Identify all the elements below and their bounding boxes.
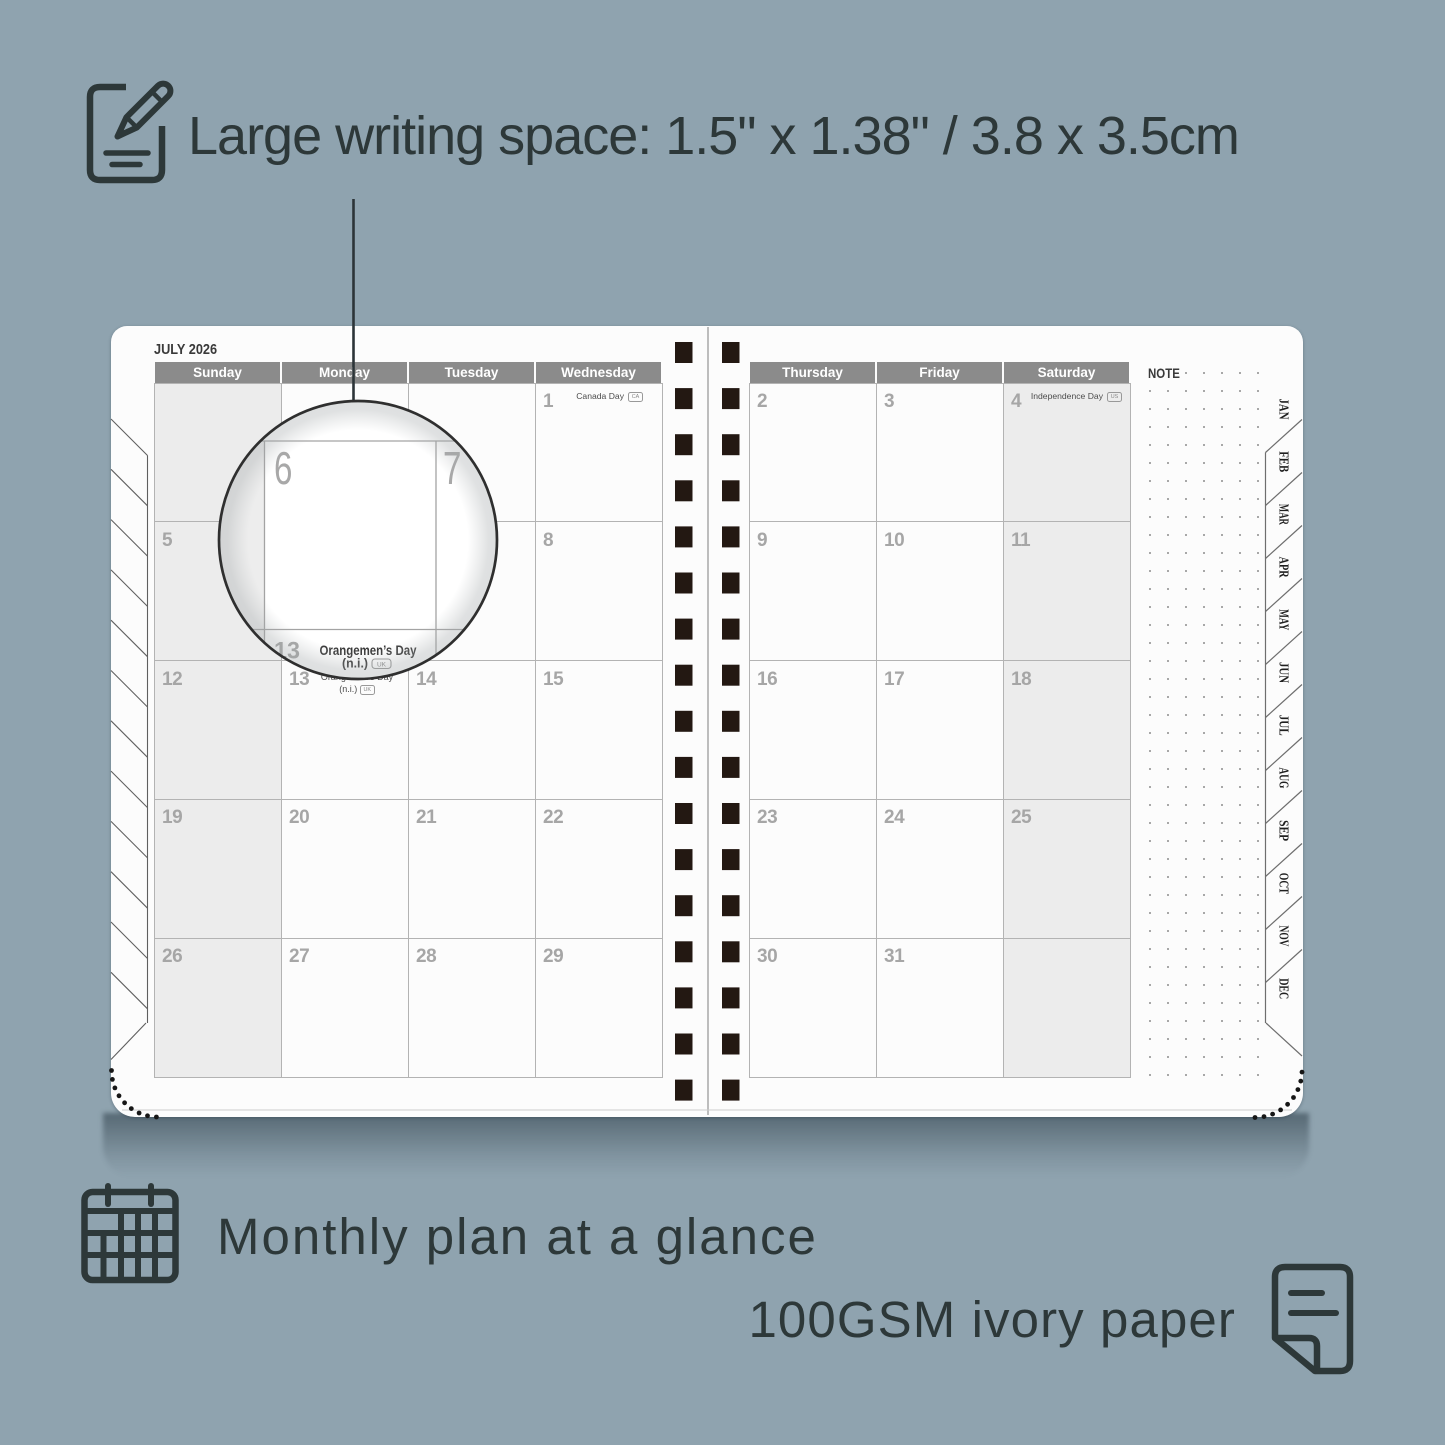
svg-text:JAN: JAN [1277,399,1292,420]
svg-text:FEB: FEB [1277,451,1292,472]
svg-text:JUL: JUL [1277,715,1292,736]
svg-text:APR: APR [1277,557,1292,578]
svg-text:SEP: SEP [1277,820,1292,841]
svg-text:MAR: MAR [1277,504,1292,525]
svg-text:JUN: JUN [1277,662,1292,683]
svg-text:OCT: OCT [1277,873,1292,894]
svg-text:MAY: MAY [1277,609,1292,630]
svg-text:AUG: AUG [1277,767,1292,788]
svg-text:DEC: DEC [1277,978,1292,999]
svg-text:NOV: NOV [1277,926,1292,947]
